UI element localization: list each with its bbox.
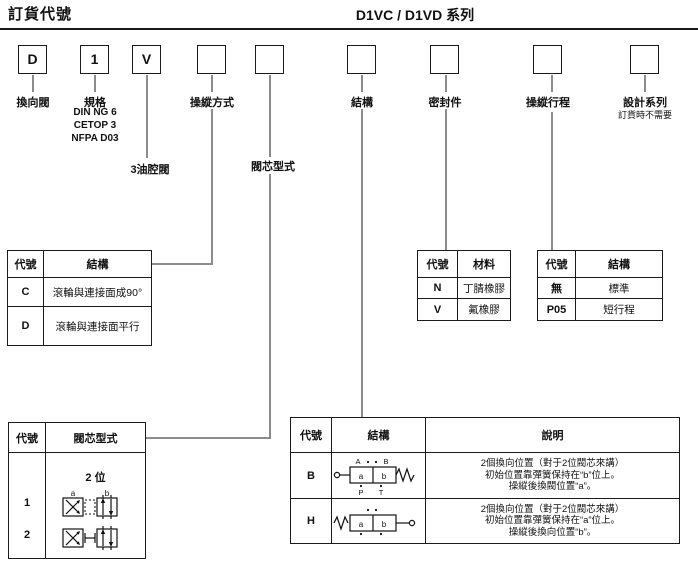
code-box-1: D [18, 45, 47, 74]
desc-cell: 標準 [576, 278, 663, 299]
table-row: B A B a b [291, 453, 680, 499]
spool-symbol-1-icon: a b [62, 489, 130, 521]
connector-line [445, 109, 447, 250]
code-cell: 無 [538, 278, 576, 299]
ordering-code-page: 訂貨代號 D1VC / D1VD 系列 D 1 V 換向閥 規格 DIN NG … [0, 0, 698, 568]
label-design-series-note: 訂貨時不需要 [618, 108, 672, 121]
connector-line [269, 174, 271, 439]
code-box-7 [430, 45, 459, 74]
description-line: 操縱後換閥位置“a”。 [426, 481, 679, 493]
spool-symbol-2-icon [62, 526, 130, 552]
column-header: 閥芯型式 [46, 423, 146, 453]
structure-table: 代號 結構 說明 B [290, 417, 680, 544]
label-operation-method: 操縱方式 [190, 94, 234, 110]
table-row: 1 2 2 位 [9, 453, 146, 559]
column-header: 說明 [426, 418, 680, 453]
column-header: 材料 [458, 251, 511, 278]
svg-text:a: a [358, 472, 363, 481]
connector-line [211, 75, 213, 92]
description-line: 操縱後換向位置“b”。 [426, 527, 679, 539]
table-row: C 滾輪與連接面成90° [8, 278, 152, 307]
description-line: 2個換向位置（對于2位閥芯來講） [426, 458, 679, 470]
column-header: 代號 [538, 251, 576, 278]
label-3-chamber-valve: 3油腔閥 [130, 161, 169, 177]
description-line: 初始位置靠彈簧保持在“a”位上。 [426, 515, 679, 527]
description-cell: 2個換向位置（對于2位閥芯來講） 初始位置靠彈簧保持在“b”位上。 操縱後換閥位… [426, 453, 680, 499]
table-row: 無 標準 [538, 278, 663, 299]
connector-line [361, 109, 363, 417]
table-row: N 丁腈橡膠 [418, 278, 511, 299]
svg-text:P: P [358, 488, 363, 496]
connector-line [551, 112, 553, 250]
label-spool-type: 閥芯型式 [251, 158, 295, 174]
code-box-2: 1 [80, 45, 109, 74]
code-cell: 1 [9, 497, 45, 509]
code-cell: V [418, 299, 458, 321]
spool-code-column: 1 2 [9, 453, 46, 559]
connector-line [151, 263, 213, 265]
table-row: D 滾輪與連接面平行 [8, 307, 152, 346]
svg-text:b: b [104, 489, 109, 498]
column-header: 代號 [8, 251, 44, 278]
spool-type-table: 代號 閥芯型式 1 2 2 位 [8, 422, 146, 559]
seal-material-table: 代號 材料 N 丁腈橡膠 V 氟橡膠 [417, 250, 511, 321]
connector-line [644, 75, 646, 92]
desc-cell: 氟橡膠 [458, 299, 511, 321]
svg-text:A: A [355, 457, 360, 466]
positions-label: 2 位 [46, 469, 145, 485]
connector-line [445, 75, 447, 92]
column-header: 代號 [9, 423, 46, 453]
connector-line [211, 109, 213, 265]
stroke-table: 代號 結構 無 標準 P05 短行程 [537, 250, 663, 321]
code-cell: H [291, 499, 332, 544]
connector-line [361, 75, 363, 92]
code-box-4 [197, 45, 226, 74]
label-seals: 密封件 [429, 94, 462, 110]
code-cell: B [291, 453, 332, 499]
valve-symbol-b-icon: A B a b P T [333, 456, 425, 496]
table-row: V 氟橡膠 [418, 299, 511, 321]
label-size-din: DIN NG 6 [73, 107, 116, 118]
code-cell: C [8, 278, 44, 307]
roller-orientation-table: 代號 結構 C 滾輪與連接面成90° D 滾輪與連接面平行 [7, 250, 152, 346]
desc-cell: 丁腈橡膠 [458, 278, 511, 299]
connector-line [94, 75, 96, 92]
table-row: H a b [291, 499, 680, 544]
code-box-6 [347, 45, 376, 74]
connector-line [551, 75, 553, 92]
label-size-cetop: CETOP 3 [74, 120, 116, 131]
connector-line [146, 75, 148, 158]
description-line: 2個換向位置（對于2位閥芯來講） [426, 504, 679, 516]
spool-symbol-column: 2 位 [46, 453, 146, 559]
page-title: 訂貨代號 [8, 3, 72, 24]
svg-text:a: a [70, 489, 75, 498]
code-box-9 [630, 45, 659, 74]
symbol-cell: A B a b P T [332, 453, 426, 499]
code-cell: P05 [538, 299, 576, 321]
code-cell: 2 [9, 529, 45, 541]
series-title: D1VC / D1VD 系列 [325, 5, 505, 25]
connector-line [145, 437, 271, 439]
svg-text:b: b [381, 472, 386, 481]
desc-cell: 滾輪與連接面成90° [44, 278, 152, 307]
svg-text:B: B [383, 457, 388, 466]
table-row: P05 短行程 [538, 299, 663, 321]
column-header: 代號 [291, 418, 332, 453]
svg-text:a: a [358, 520, 363, 529]
column-header: 結構 [44, 251, 152, 278]
column-header: 結構 [332, 418, 426, 453]
svg-text:T: T [378, 488, 383, 496]
label-directional-valve: 換向閥 [17, 94, 50, 110]
label-structure: 結構 [351, 94, 373, 110]
description-cell: 2個換向位置（對于2位閥芯來講） 初始位置靠彈簧保持在“a”位上。 操縱後換向位… [426, 499, 680, 544]
svg-text:b: b [381, 520, 386, 529]
connector-line [269, 75, 271, 157]
connector-line [32, 75, 34, 92]
description-line: 初始位置靠彈簧保持在“b”位上。 [426, 470, 679, 482]
code-box-3: V [132, 45, 161, 74]
symbol-cell: a b [332, 499, 426, 544]
label-operation-stroke: 操縱行程 [526, 94, 570, 110]
code-cell: N [418, 278, 458, 299]
code-cell: D [8, 307, 44, 346]
column-header: 代號 [418, 251, 458, 278]
label-size-nfpa: NFPA D03 [71, 133, 118, 144]
code-box-5 [255, 45, 284, 74]
valve-symbol-h-icon: a b [333, 504, 425, 538]
desc-cell: 滾輪與連接面平行 [44, 307, 152, 346]
desc-cell: 短行程 [576, 299, 663, 321]
title-rule [0, 28, 698, 30]
code-box-8 [533, 45, 562, 74]
column-header: 結構 [576, 251, 663, 278]
